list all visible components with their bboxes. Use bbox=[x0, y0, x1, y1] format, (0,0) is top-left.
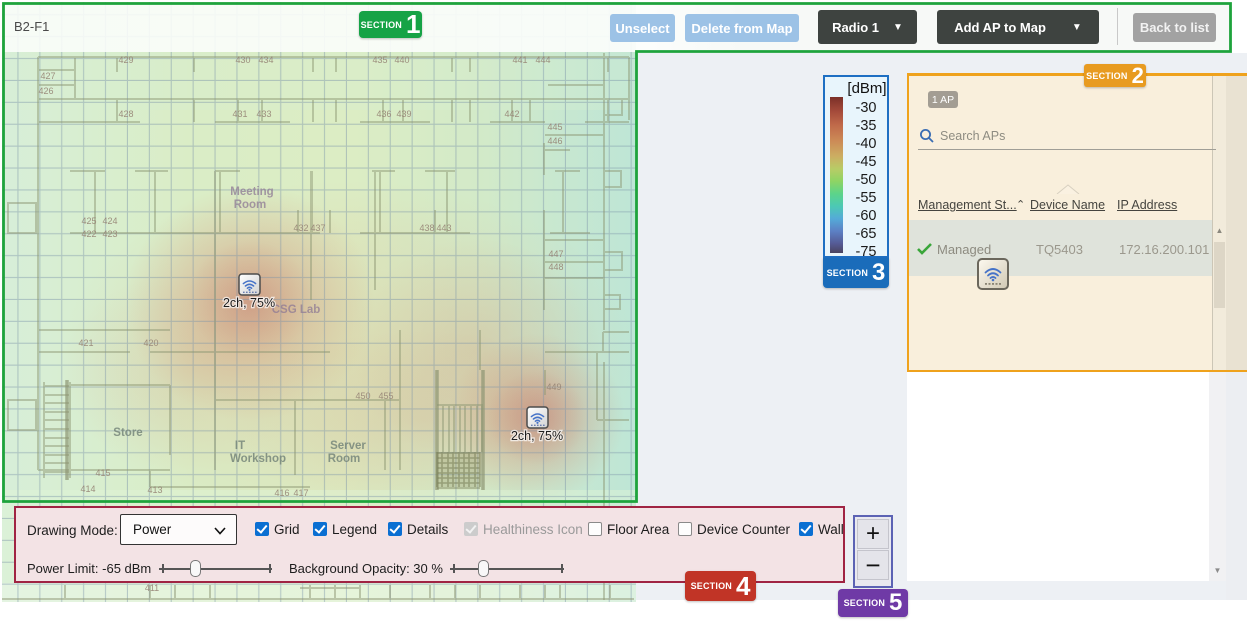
svg-text:Server: Server bbox=[330, 440, 366, 452]
svg-text:Meeting: Meeting bbox=[230, 186, 273, 198]
svg-text:455: 455 bbox=[378, 391, 393, 401]
svg-text:CSG Lab: CSG Lab bbox=[272, 304, 321, 316]
svg-text:432: 432 bbox=[293, 223, 308, 233]
svg-text:429: 429 bbox=[118, 55, 133, 65]
svg-text:442: 442 bbox=[504, 109, 519, 119]
svg-text:446: 446 bbox=[547, 136, 562, 146]
svg-text:439: 439 bbox=[396, 109, 411, 119]
svg-text:434: 434 bbox=[258, 55, 273, 65]
svg-text:Store: Store bbox=[113, 427, 142, 439]
svg-text:450: 450 bbox=[355, 391, 370, 401]
svg-text:413: 413 bbox=[147, 485, 162, 495]
svg-text:433: 433 bbox=[256, 109, 271, 119]
svg-text:420: 420 bbox=[143, 338, 158, 348]
svg-text:416: 416 bbox=[274, 488, 289, 498]
svg-text:417: 417 bbox=[293, 488, 308, 498]
svg-text:Room: Room bbox=[234, 199, 267, 211]
svg-text:424: 424 bbox=[102, 216, 117, 226]
svg-text:421: 421 bbox=[78, 338, 93, 348]
svg-text:415: 415 bbox=[95, 468, 110, 478]
svg-text:427: 427 bbox=[40, 71, 55, 81]
svg-text:436: 436 bbox=[376, 109, 391, 119]
svg-text:423: 423 bbox=[102, 229, 117, 239]
svg-text:438: 438 bbox=[419, 223, 434, 233]
svg-text:435: 435 bbox=[372, 55, 387, 65]
svg-text:428: 428 bbox=[118, 109, 133, 119]
svg-text:2ch, 75%: 2ch, 75% bbox=[223, 296, 275, 310]
svg-text:IT: IT bbox=[235, 440, 245, 452]
svg-text:426: 426 bbox=[38, 86, 53, 96]
svg-text:441: 441 bbox=[512, 55, 527, 65]
svg-text:2ch, 75%: 2ch, 75% bbox=[511, 429, 563, 443]
svg-text:422: 422 bbox=[81, 229, 96, 239]
svg-text:430: 430 bbox=[235, 55, 250, 65]
svg-text:Workshop: Workshop bbox=[230, 453, 286, 465]
svg-text:449: 449 bbox=[546, 382, 561, 392]
svg-text:414: 414 bbox=[80, 484, 95, 494]
svg-text:437: 437 bbox=[310, 223, 325, 233]
svg-text:425: 425 bbox=[81, 216, 96, 226]
svg-text:431: 431 bbox=[232, 109, 247, 119]
svg-text:445: 445 bbox=[547, 122, 562, 132]
svg-text:447: 447 bbox=[548, 249, 563, 259]
svg-text:443: 443 bbox=[436, 223, 451, 233]
svg-text:440: 440 bbox=[394, 55, 409, 65]
svg-text:411: 411 bbox=[145, 583, 159, 593]
svg-text:Room: Room bbox=[328, 453, 361, 465]
svg-text:444: 444 bbox=[535, 55, 550, 65]
svg-text:448: 448 bbox=[548, 262, 563, 272]
